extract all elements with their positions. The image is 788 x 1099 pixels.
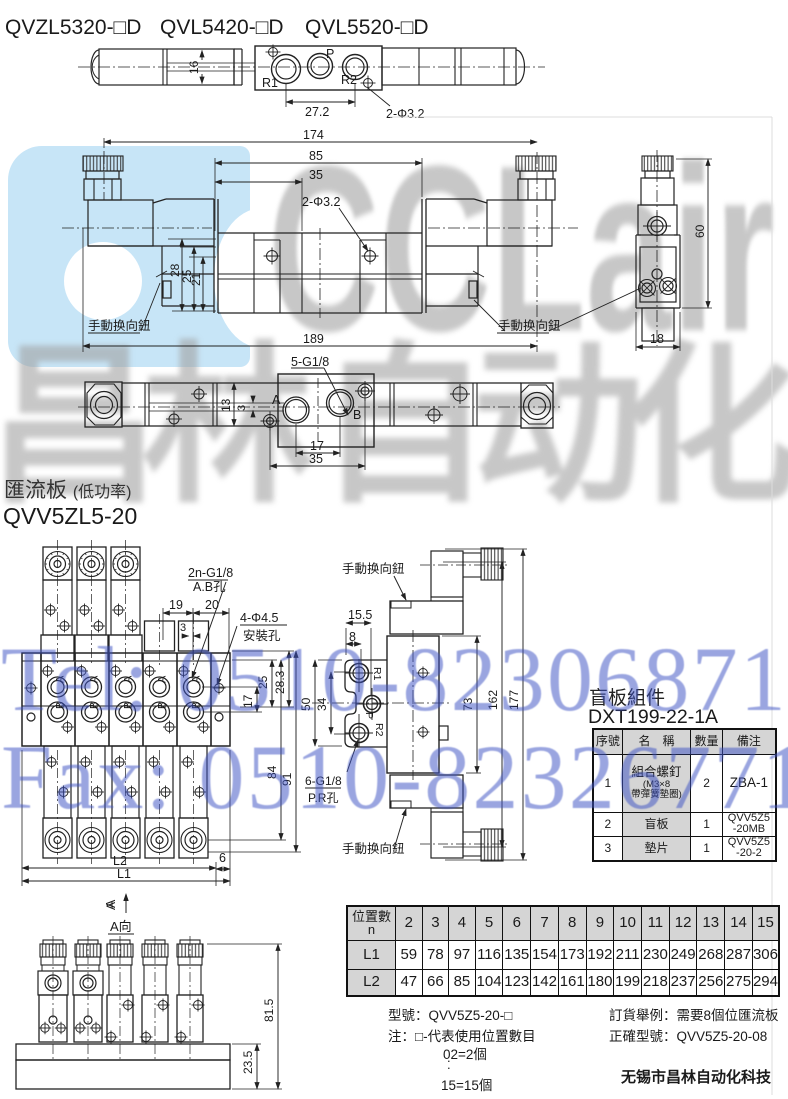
svg-text:15.5: 15.5 <box>348 608 372 622</box>
svg-text:L1: L1 <box>117 867 131 881</box>
svg-text:27.2: 27.2 <box>305 105 329 119</box>
svg-text:21: 21 <box>189 272 203 286</box>
svg-text:L2: L2 <box>113 854 127 868</box>
svg-text:189: 189 <box>303 332 324 346</box>
svg-text:6: 6 <box>219 851 226 865</box>
svg-text:85: 85 <box>309 149 323 163</box>
svg-text:4-Φ4.5: 4-Φ4.5 <box>240 611 279 625</box>
svg-text:35: 35 <box>309 452 323 466</box>
svg-text:19: 19 <box>169 598 183 612</box>
svg-text:60: 60 <box>693 224 707 238</box>
svg-text:23.5: 23.5 <box>241 1050 255 1074</box>
svg-text:2n-G1/8: 2n-G1/8 <box>188 566 233 580</box>
svg-text:A向: A向 <box>110 919 132 934</box>
svg-text:A.B孔: A.B孔 <box>193 580 226 594</box>
svg-text:2-Φ3.2: 2-Φ3.2 <box>302 195 341 209</box>
svg-text:13: 13 <box>219 398 233 412</box>
svg-text:174: 174 <box>303 128 324 142</box>
svg-text:20: 20 <box>205 598 219 612</box>
svg-text:手動换向鈕: 手動换向鈕 <box>342 561 405 576</box>
svg-text:17: 17 <box>310 439 324 453</box>
svg-text:81.5: 81.5 <box>262 998 276 1022</box>
svg-text:35: 35 <box>309 168 323 182</box>
svg-text:16: 16 <box>187 60 201 74</box>
svg-text:B: B <box>353 408 361 422</box>
svg-text:P: P <box>326 47 334 61</box>
svg-text:A: A <box>272 393 281 407</box>
svg-text:手動换向鈕: 手動换向鈕 <box>498 318 561 333</box>
svg-text:3: 3 <box>236 405 248 411</box>
svg-text:18: 18 <box>650 332 664 346</box>
svg-text:R1: R1 <box>262 76 278 90</box>
svg-text:2-Φ3.2: 2-Φ3.2 <box>386 107 425 121</box>
svg-text:A: A <box>104 899 118 908</box>
svg-text:5-G1/8: 5-G1/8 <box>291 355 329 369</box>
